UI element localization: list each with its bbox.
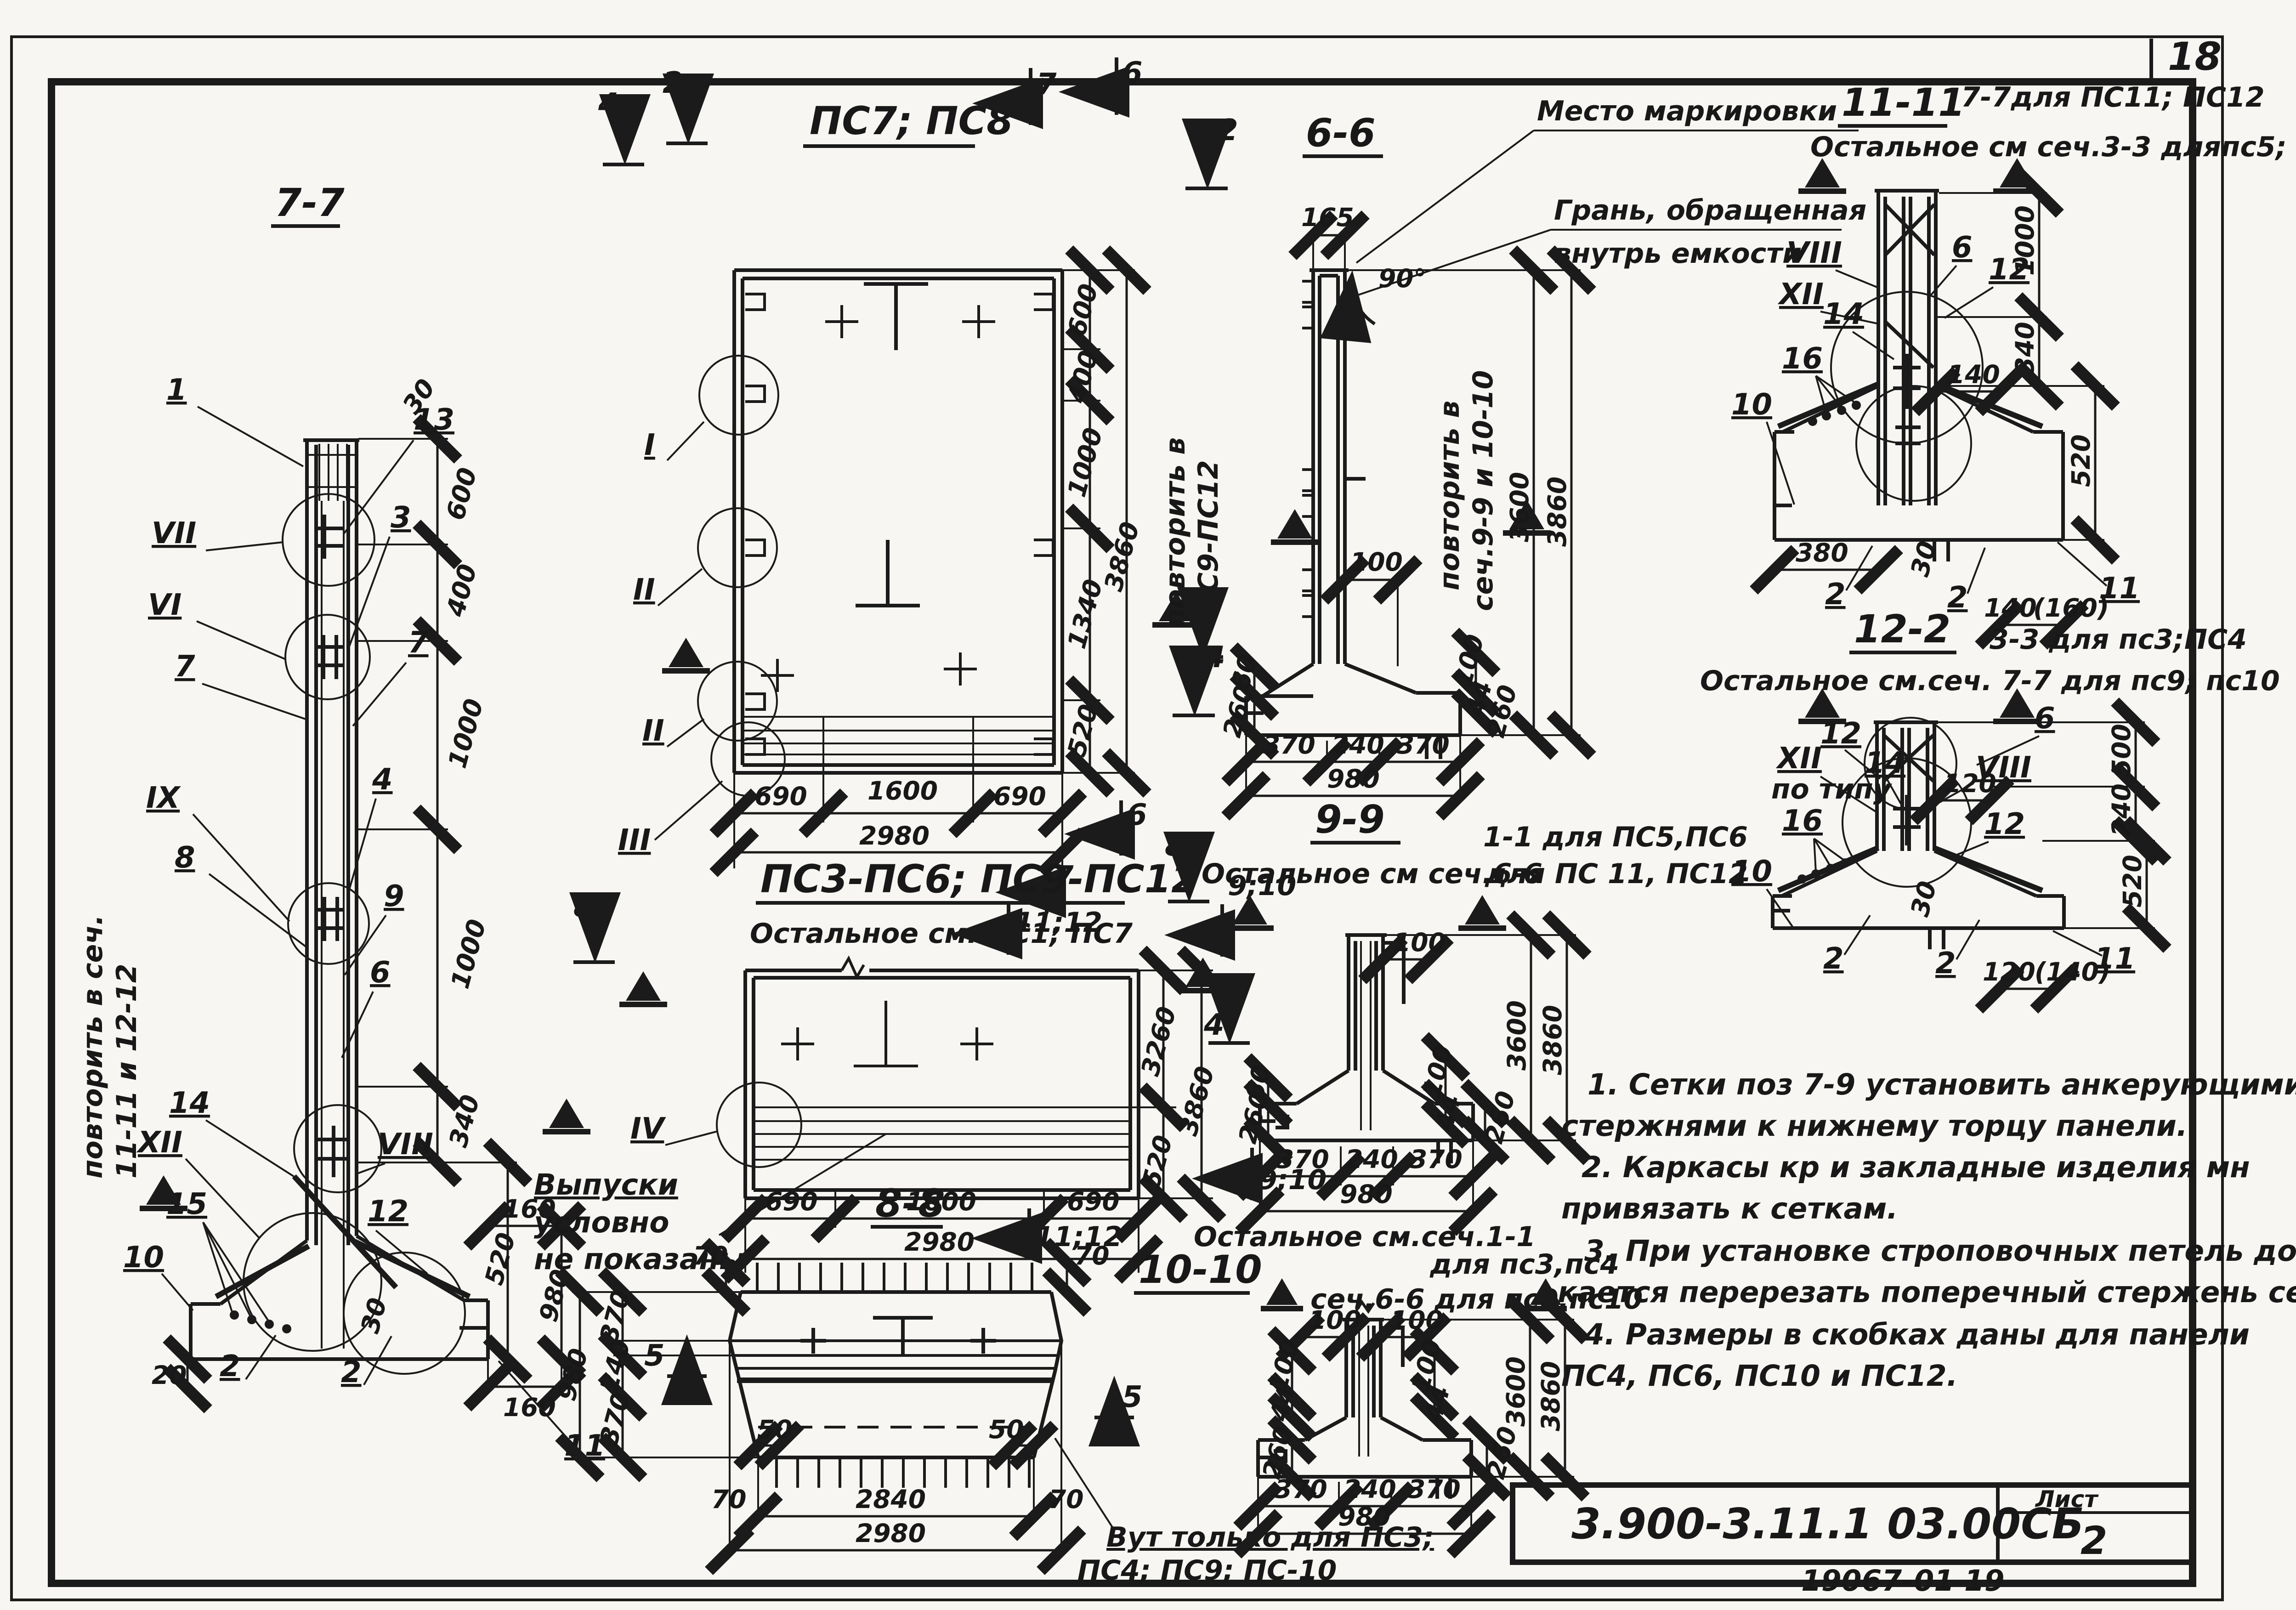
dim: 370 xyxy=(594,1389,636,1448)
dim: 520 xyxy=(2066,434,2096,487)
pos-label: 2 xyxy=(341,1355,362,1389)
dim: 240 xyxy=(1332,730,1384,760)
dim: 370 xyxy=(1263,730,1315,760)
outlet-note: Выпуски xyxy=(534,1168,678,1202)
dim: 3860 xyxy=(1099,519,1145,594)
note-line: ПС4, ПС6, ПС10 и ПС12. xyxy=(1561,1359,1958,1393)
section-title: 9-9 xyxy=(1315,797,1385,842)
dim: 600 xyxy=(1062,281,1104,339)
note-line: 4. Размеры в скобках даны для панели xyxy=(1584,1318,2250,1351)
dim: 100 xyxy=(1309,1305,1361,1335)
note-line: 3. При установке строповочных петель доп… xyxy=(1584,1234,2296,1268)
dim: 20 xyxy=(152,1361,187,1390)
drawing-sheet: 18 3.900-3.11.1 03.00СБ Лист 2 19067-01 … xyxy=(0,0,2296,1610)
pos-label: 2 xyxy=(220,1349,240,1383)
dim: 3860 xyxy=(1536,1361,1565,1431)
document-code: 3.900-3.11.1 03.00СБ xyxy=(1571,1499,2084,1548)
panel-title: ПС7; ПС8 xyxy=(810,98,1014,143)
dim: 340 xyxy=(443,1092,486,1150)
dim: 90° xyxy=(1378,264,1426,293)
pos-label: 9 xyxy=(384,879,404,913)
subtitle: 3-3 для пс3;ПС4 xyxy=(1990,624,2247,656)
pos-label: 1 xyxy=(166,373,187,407)
pos-label: 7 xyxy=(408,626,429,660)
note-line: 2. Каркасы кр и закладные изделия мн xyxy=(1582,1151,2250,1184)
subtitle: для пс3,пс4 xyxy=(1429,1248,1619,1281)
note-line: стержнями к нижнему торцу панели. xyxy=(1561,1109,2188,1143)
dim: 2980 xyxy=(859,821,930,850)
subtitle: Остальное см.сеч. 7-7 для пс9; пс10 xyxy=(1700,665,2280,697)
dim: 100 xyxy=(1417,1042,1459,1100)
position-mark-icon xyxy=(619,971,667,1004)
callout: внутрь емкости xyxy=(1554,238,1802,270)
stamp-code: 19067-01 19 xyxy=(1801,1564,2005,1598)
section-7-7: 7-7 30 600 400 1000 1000 340 160 520 980… xyxy=(77,180,605,1463)
cut-mark: 8 xyxy=(573,890,594,924)
position-mark-icon xyxy=(543,1099,590,1132)
pos-label: 2 xyxy=(1823,942,1844,976)
pos-label: 16 xyxy=(1782,342,1823,376)
sheet-label: Лист xyxy=(2035,1486,2099,1513)
callout: Грань, обращенная xyxy=(1554,194,1866,227)
pos-label: 6 xyxy=(2035,702,2055,736)
dim: 100 xyxy=(1393,928,1446,957)
pos-label: 4 xyxy=(372,763,393,797)
dim: 690 xyxy=(993,782,1046,811)
dim: 1600 xyxy=(867,776,938,805)
dim: 980 xyxy=(1338,1502,1391,1531)
roman-label: III xyxy=(618,823,651,857)
dim: 2980 xyxy=(904,1227,975,1257)
dim: 370 xyxy=(1410,1145,1463,1174)
pos-label: 16 xyxy=(1782,804,1823,838)
cut-mark: 5 xyxy=(644,1339,665,1373)
dim: 690 xyxy=(1067,1187,1120,1216)
dim: 70 xyxy=(693,1241,728,1270)
section-title: 12-2 xyxy=(1854,607,1950,652)
dim: 1000 xyxy=(445,916,492,992)
pos-label: 3 xyxy=(391,501,411,535)
cut-mark: 2 xyxy=(663,66,683,100)
dim: 30 xyxy=(1905,538,1943,580)
dim: 140 xyxy=(1984,593,2037,623)
callout: Место маркировки xyxy=(1537,95,1837,127)
dim: 2980 xyxy=(856,1519,926,1548)
dim: 520 xyxy=(1136,1132,1179,1190)
dim: 380 xyxy=(1796,538,1848,567)
dim: 500 xyxy=(2107,724,2136,777)
roman-label: VIII xyxy=(1786,236,1842,270)
roman-label: VI xyxy=(148,588,181,622)
dim: 50 xyxy=(989,1415,1024,1444)
dim: 520 xyxy=(2118,855,2147,907)
subtitle: Остальное см сеч.3-3 дляпс5; пс6 xyxy=(1810,131,2296,163)
dim: 980 xyxy=(1327,764,1380,794)
dim: 600 xyxy=(441,465,483,523)
dim: 260 xyxy=(1481,1423,1523,1482)
cut-mark: 8 xyxy=(1165,829,1185,863)
dim: 3600 xyxy=(1501,1356,1531,1427)
repeat-note: сеч.9-9 и 10-10 xyxy=(1467,370,1499,611)
dim: 100 xyxy=(1350,547,1403,577)
pos-label: 2 xyxy=(1825,578,1846,612)
pos-label: 6 xyxy=(1952,231,1973,265)
roman-label: I xyxy=(644,428,655,462)
cut-mark: 4 xyxy=(1203,1008,1225,1042)
dim: (140) xyxy=(2035,957,2110,986)
note-line: привязать к сеткам. xyxy=(1561,1192,1898,1225)
callout: ПС4; ПС9; ПС-10 xyxy=(1077,1554,1337,1587)
dim: 400 xyxy=(440,561,482,620)
page-number: 18 xyxy=(2168,34,2222,79)
dim: 260 xyxy=(1479,1088,1521,1146)
roman-label: IV xyxy=(630,1112,666,1146)
pos-label: 12 xyxy=(1984,807,2025,841)
dim: 3860 xyxy=(1174,1063,1220,1139)
pos-label: 14 xyxy=(1823,297,1864,331)
dim: 240 xyxy=(1344,1474,1396,1504)
repeat-note: повторить в сеч. xyxy=(77,915,109,1179)
pos-label: 14 xyxy=(169,1086,210,1120)
section-title: 8-8 xyxy=(875,1181,945,1226)
dim: 690 xyxy=(754,782,807,811)
pos-label: 12 xyxy=(368,1195,408,1229)
dim: 240 xyxy=(1345,1145,1398,1174)
notes-block: 1. Сетки поз 7-9 установить анкерующими … xyxy=(1558,1068,2296,1393)
position-mark-icon xyxy=(662,638,710,671)
dim: 400 xyxy=(1061,347,1104,406)
subtitle: для ПС 11, ПС12 xyxy=(1485,858,1748,890)
dim: (160) xyxy=(2033,593,2109,623)
dim: 260 xyxy=(1217,682,1259,740)
dim: 520 xyxy=(1062,701,1104,760)
pos-label: 12 xyxy=(1820,717,1861,751)
pos-label: 10 xyxy=(123,1241,164,1275)
sheet-number: 2 xyxy=(2081,1518,2107,1563)
dim: 370 xyxy=(1408,1474,1461,1504)
note-line: 1. Сетки поз 7-9 установить анкерующими xyxy=(1587,1068,2296,1101)
position-mark-icon xyxy=(1261,1278,1303,1309)
dim: 370 xyxy=(1397,730,1450,760)
dim: 120 xyxy=(1944,769,1996,798)
pos-label: 10 xyxy=(1731,388,1772,422)
section-title: 10-10 xyxy=(1139,1247,1262,1292)
roman-label: II xyxy=(642,714,664,748)
dim: 30 xyxy=(355,1295,393,1337)
cut-mark: 4 xyxy=(598,87,619,121)
section-title: 6-6 xyxy=(1306,110,1376,155)
pos-label: 2 xyxy=(1935,947,1956,981)
dim: 370 xyxy=(594,1287,636,1345)
dim: 70 xyxy=(1049,1485,1084,1514)
roman-label: II xyxy=(633,573,655,607)
dim: 980 xyxy=(552,1345,594,1404)
cut-mark: 6 xyxy=(1122,56,1143,90)
dim: 1000 xyxy=(1062,425,1108,500)
dim: 120 xyxy=(1983,957,2035,986)
pos-label: 7 xyxy=(175,650,195,684)
section-title: 11-11 xyxy=(1842,80,1965,125)
cut-mark: 11;12 xyxy=(1015,907,1102,939)
dim: 690 xyxy=(765,1187,818,1216)
dim: 30 xyxy=(1905,878,1943,920)
repeat-note: повторить в xyxy=(1434,401,1466,590)
roman-label: XII xyxy=(1775,742,1822,776)
roman-label: XII xyxy=(136,1126,182,1160)
dim: 3600 xyxy=(1505,472,1534,542)
repeat-note: 11-11 и 12-12 xyxy=(111,964,143,1179)
pos-label: 8 xyxy=(175,841,195,875)
dim: 3600 xyxy=(1502,1000,1531,1071)
dim: 50 xyxy=(757,1415,793,1444)
dim: 70 xyxy=(1074,1241,1110,1270)
roman-label: IX xyxy=(146,781,181,815)
dim: 240 xyxy=(594,1336,636,1395)
dim: 165 xyxy=(1301,203,1354,232)
dim: 1000 xyxy=(442,696,489,771)
pos-label: 6 xyxy=(370,956,391,990)
pos-label: 13 xyxy=(414,403,454,437)
dim: 3860 xyxy=(1542,476,1572,547)
pos-label: 14 xyxy=(1865,746,1905,780)
dim: 3260 xyxy=(1135,1003,1182,1079)
roman-label: VIII xyxy=(378,1128,433,1162)
cut-mark: 7 xyxy=(1036,68,1057,102)
subtitle: 1-1 для ПС5,ПС6 xyxy=(1483,821,1748,853)
cut-mark: 5 xyxy=(1122,1380,1143,1414)
cut-mark: 6 xyxy=(1127,798,1147,832)
cut-mark: 4 xyxy=(1177,585,1198,619)
roman-label: XII xyxy=(1777,278,1824,312)
dim: 140 xyxy=(1947,360,2000,389)
dim: 520 xyxy=(479,1230,522,1288)
panel-ps7-ps8: ПС7; ПС8 4 2 7 6 2 I II II III 4 600 400… xyxy=(598,56,1238,913)
cut-mark: 2 xyxy=(1218,113,1238,147)
note-line: кается перерезать поперечный стержень се… xyxy=(1558,1276,2296,1309)
dim: 370 xyxy=(1275,1474,1327,1504)
dim: 70 xyxy=(711,1485,747,1514)
position-mark-icon xyxy=(1179,958,1227,991)
panel-title: ПС3-ПС6; ПС9-ПС12 xyxy=(760,856,1198,901)
subtitle: 7-7для ПС11; ПС12 xyxy=(1961,81,2265,113)
dim: 240 xyxy=(2107,783,2136,836)
dim: 2840 xyxy=(856,1485,926,1514)
dim: 3860 xyxy=(1538,1005,1567,1075)
dim: 980 xyxy=(1340,1179,1393,1209)
outlet-note: условно xyxy=(534,1206,669,1239)
dim: 370 xyxy=(1276,1145,1329,1174)
position-mark-icon xyxy=(1458,895,1506,928)
blueprint-canvas: 18 3.900-3.11.1 03.00СБ Лист 2 19067-01 … xyxy=(0,0,2296,1610)
section-11-11: 11-11 7-7для ПС11; ПС12 Остальное см сеч… xyxy=(1731,80,2296,625)
dim: 340 xyxy=(2010,322,2040,374)
section-title: 7-7 xyxy=(275,180,345,225)
dim: 1000 xyxy=(2010,205,2040,276)
roman-label: VII xyxy=(152,516,196,550)
